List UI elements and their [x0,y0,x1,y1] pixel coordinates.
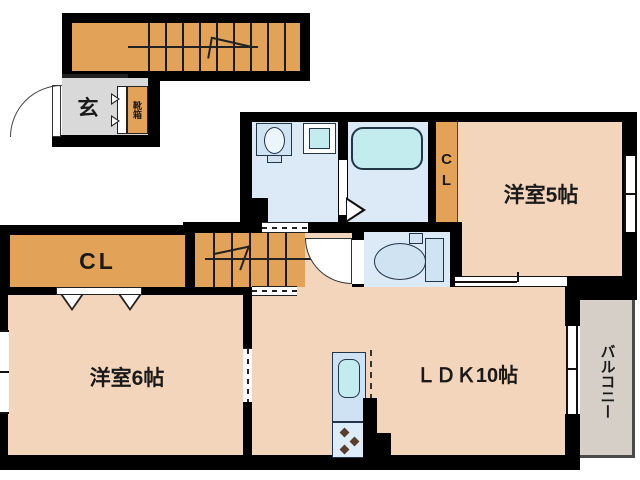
floor-plan: 靴箱 玄 CL CL バルコニー [0,0,640,480]
stair-tread [285,233,287,287]
room-label-west5: 洋室5帖 [460,180,622,208]
stair-tread [284,23,286,71]
window-west6-tick [0,371,9,373]
wall-bottom [0,455,580,470]
shoe-cabinet: 靴箱 [127,86,148,134]
wall-sanitary-left [240,112,252,233]
stair-tread [267,23,269,71]
bathtub [351,127,423,170]
sliding-door-west6 [243,348,252,402]
washroom-wall-stub [252,198,268,222]
room-label-ldk: ＬＤＫ10帖 [372,358,562,388]
kitchen-wall-stub [363,398,377,458]
hall-ldk-opening [252,286,297,296]
wall-balcony-top [565,276,637,300]
stair-direction-arrow [205,258,322,260]
sliding-door-west5-line [455,281,517,283]
wall-top [240,112,637,122]
toilet-flush-button [409,233,423,244]
balcony-label: バルコニー [584,310,630,452]
stair-tread [267,233,269,287]
toilet-tank [425,238,444,282]
sink-pedestal [267,155,282,163]
toilet-bowl [374,243,426,280]
bath-door-gap [339,160,347,215]
kitchen-sink [338,359,360,398]
washroom-opening [262,222,308,233]
window-balcony [566,326,578,414]
closet-upper: CL [436,122,458,222]
wall-ldk-right-upper [565,300,580,326]
closet-left-label: CL [10,244,185,278]
kitchen-wall-step [377,433,391,458]
window-west5-tick [624,193,637,195]
stair-tread [249,233,251,287]
sliding-door-west5-tick [517,272,519,282]
shoe-cabinet-door [117,86,127,134]
toilet-door-gap [352,240,364,284]
wall-bath-closet [428,122,436,222]
stair-direction-arrow [128,46,258,48]
kitchen-stove [332,422,366,458]
wall-ldk-right-lower [565,414,580,459]
room-label-west6: 洋室6帖 [22,362,232,392]
entrance-door-arc [10,85,62,137]
stair-tread [231,233,233,287]
stair-tread [213,233,215,287]
genkan-label: 玄 [66,93,110,121]
washing-machine-drum [309,128,330,149]
genkan-wall-bottom [52,135,160,147]
sink-basin [264,127,285,154]
closet-folding-door [56,287,142,295]
window-balcony-tick [566,368,578,370]
